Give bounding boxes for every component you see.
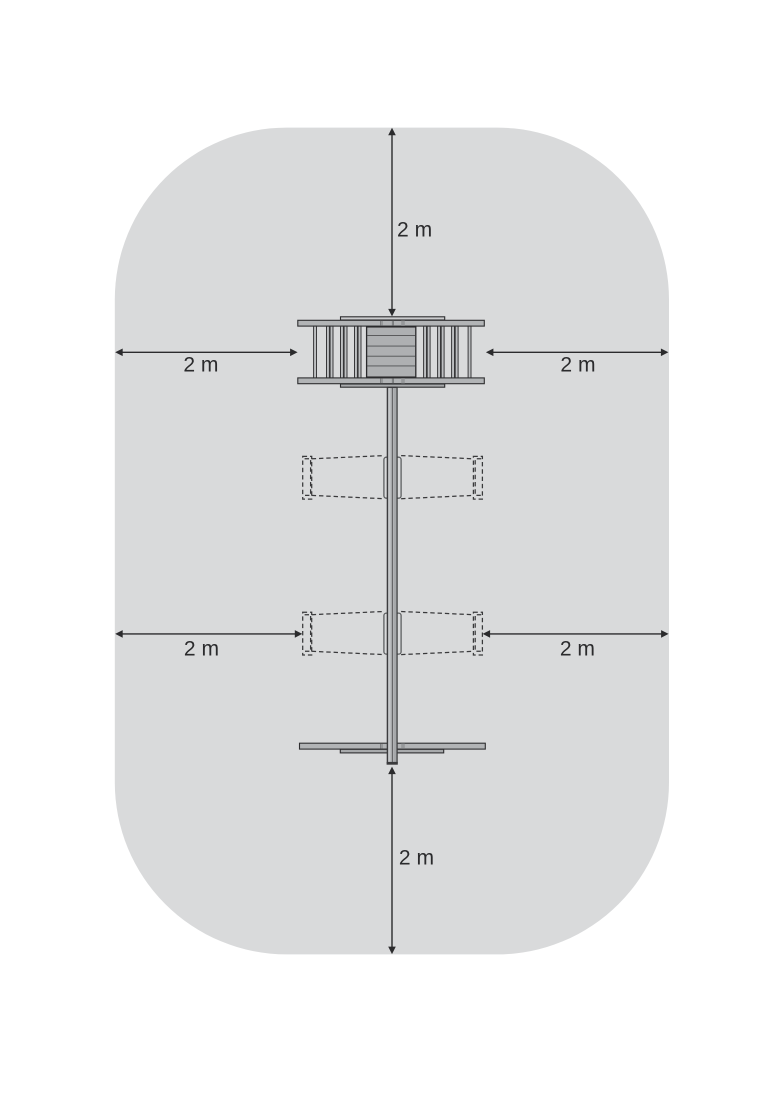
svg-text:2 m: 2 m <box>397 218 432 241</box>
svg-text:2 m: 2 m <box>184 638 219 661</box>
svg-text:2 m: 2 m <box>560 354 595 377</box>
svg-text:2 m: 2 m <box>399 847 434 870</box>
svg-text:2 m: 2 m <box>560 638 595 661</box>
svg-text:2 m: 2 m <box>183 354 218 377</box>
